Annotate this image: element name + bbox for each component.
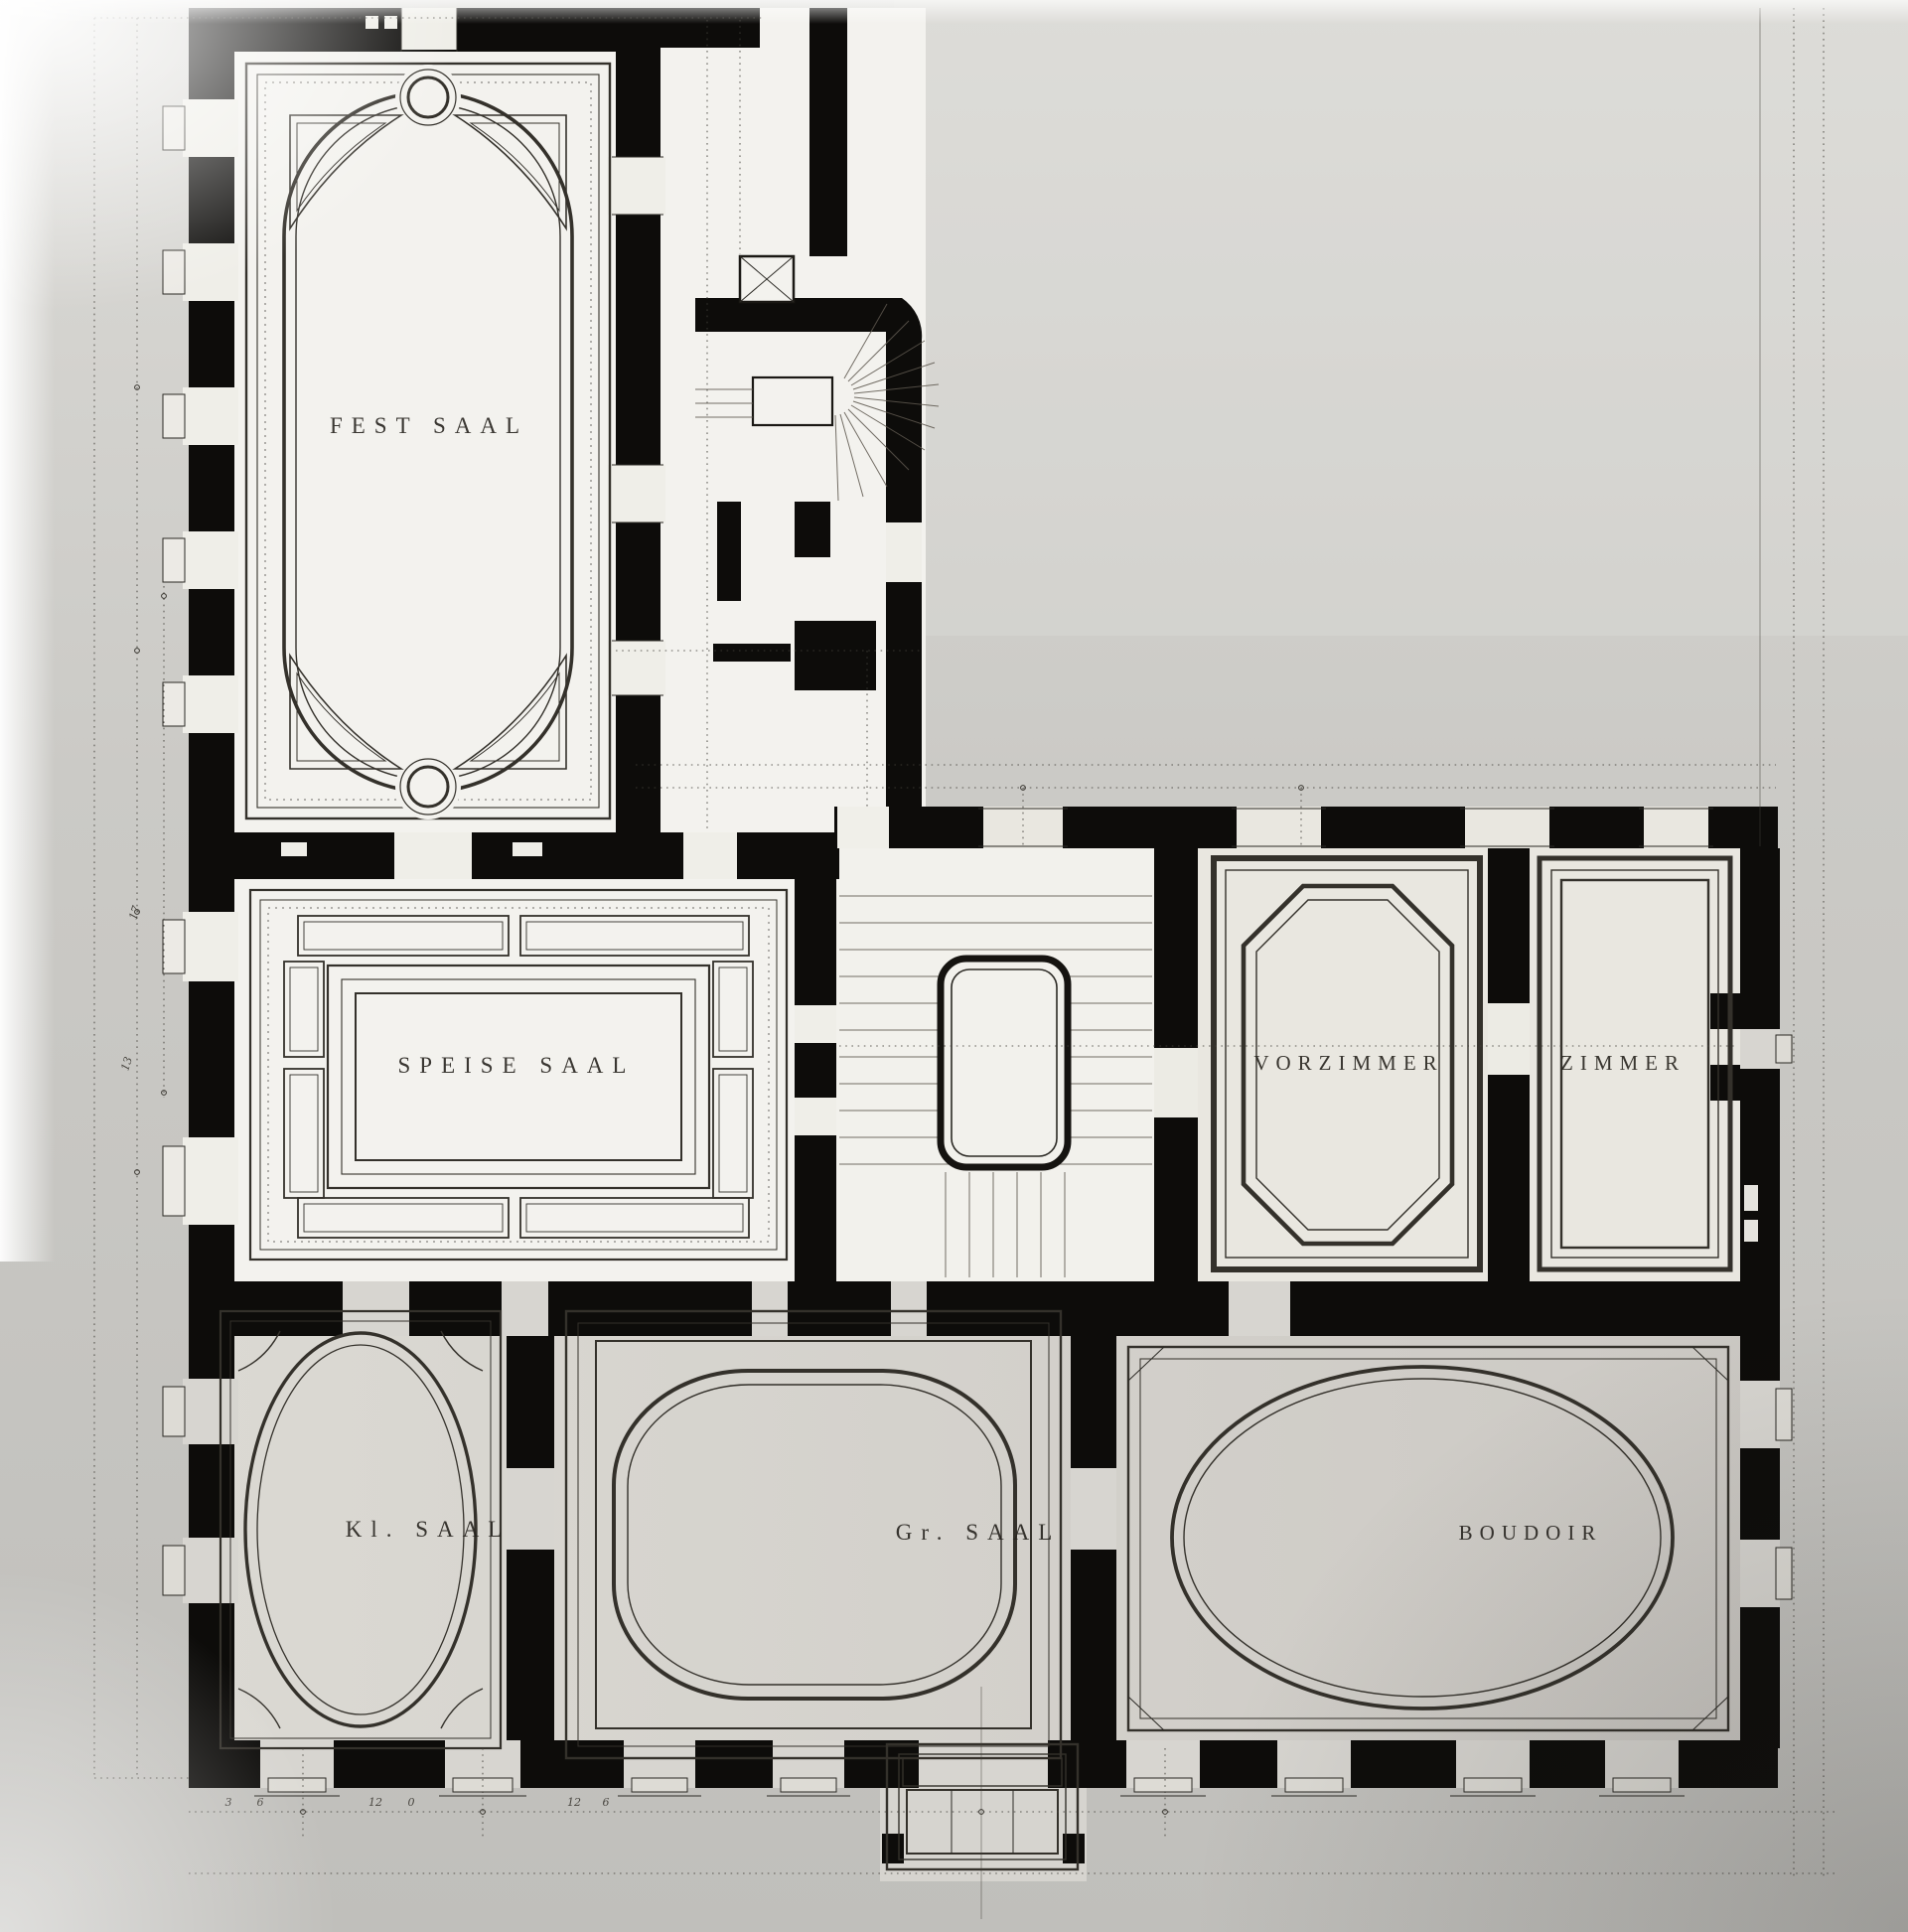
room-label-speise-saal: SPEISE SAAL: [398, 1053, 636, 1078]
dim-label-bottom-3: 12: [368, 1796, 382, 1809]
room-label-kl-saal: Kl. SAAL: [346, 1517, 512, 1542]
floor-plan-drawing: 17 13 3 6 12 0 12 6 FEST SAAL SPEISE SAA…: [0, 0, 1908, 1932]
stairwell-opening: [941, 959, 1068, 1167]
dim-label-bottom-5: 12: [567, 1796, 581, 1809]
room-label-vorzimmer: VORZIMMER: [1253, 1051, 1443, 1075]
dim-label-bottom-4: 0: [408, 1796, 415, 1809]
room-label-gr-saal: Gr. SAAL: [896, 1520, 1062, 1545]
room-label-fest-saal: FEST SAAL: [330, 413, 528, 438]
floor-plan-sheet: 17 13 3 6 12 0 12 6 FEST SAAL SPEISE SAA…: [0, 0, 1908, 1932]
dim-label-bottom-6: 6: [603, 1796, 610, 1809]
room-label-zimmer: ZIMMER: [1560, 1051, 1686, 1075]
